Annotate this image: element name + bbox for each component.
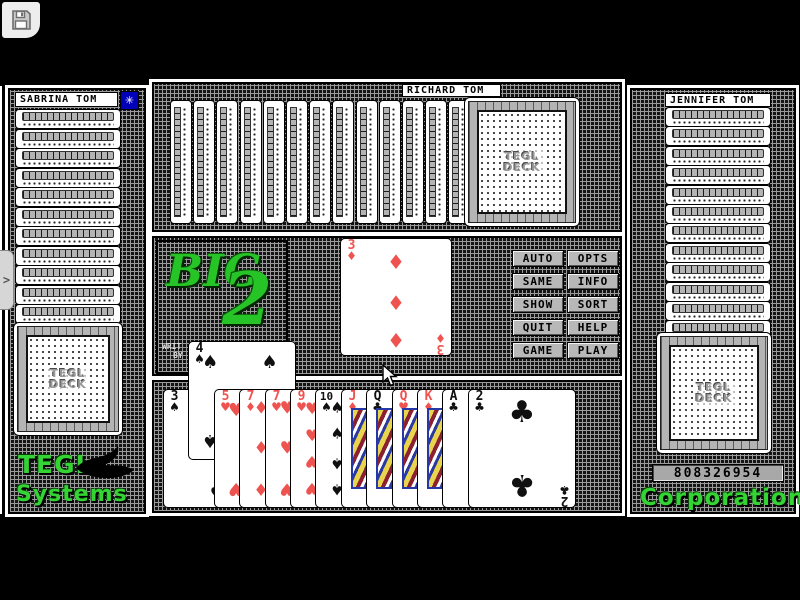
opponent-card-back (15, 168, 121, 188)
card-back-ticks (267, 107, 274, 217)
deck-brand-label: TEGLDECK (47, 367, 88, 391)
opponent-card-back (665, 107, 771, 127)
player-name-north: RICHARD TOM (402, 84, 501, 97)
card-back-ticks (22, 112, 114, 121)
opponent-card-back (216, 100, 238, 224)
opponent-card-back (15, 148, 121, 168)
card-back-dots (414, 107, 419, 217)
card-back-dots (672, 256, 764, 261)
opponent-card-back (332, 100, 354, 224)
card-pip-spade: ♠ (261, 354, 277, 372)
opponent-card-back (665, 243, 771, 263)
opponent-card-back (665, 262, 771, 282)
playing-card-3-diamond: 3♦3♦♦♦♦ (340, 238, 452, 356)
card-back-ticks (22, 307, 114, 316)
slide-out-tab[interactable]: > (0, 250, 14, 310)
opponent-card-back (170, 100, 192, 224)
opponent-card-back (665, 126, 771, 146)
button-auto[interactable]: AUTO (512, 250, 564, 267)
card-back-ticks (22, 288, 114, 297)
card-index: 2♣ (557, 484, 572, 505)
card-back-dotted-field: TEGLDECK (669, 345, 759, 441)
bird-logo-icon (74, 442, 136, 484)
card-back-dots (672, 178, 764, 183)
card-back-dots (391, 107, 396, 217)
card-back-dots (22, 181, 114, 186)
card-back-ticks (336, 107, 343, 217)
player-name-west: SABRINA TOM (15, 92, 118, 107)
button-help[interactable]: HELP (567, 319, 619, 336)
card-back-dots (22, 298, 114, 303)
card-back-ticks (313, 107, 320, 217)
floppy-disk-icon (10, 9, 32, 31)
card-index: 3♠ (167, 392, 182, 413)
opponent-card-back (665, 165, 771, 185)
card-back-ticks (672, 304, 764, 313)
opponent-card-back (665, 146, 771, 166)
card-back-dots (672, 295, 764, 300)
panel-player-east: JENNIFER TOM TEGLDECK 808326954 Corporat… (630, 88, 796, 514)
opponent-card-back (665, 282, 771, 302)
card-back-dots (672, 159, 764, 164)
card-back-ticks (244, 107, 251, 217)
button-info[interactable]: INFO (567, 273, 619, 290)
card-back-full: TEGLDECK (464, 97, 580, 227)
card-back-ticks (672, 265, 764, 274)
card-back-ticks (290, 107, 297, 217)
card-back-ticks (672, 110, 764, 119)
card-back-ticks (672, 149, 764, 158)
button-game[interactable]: GAME (512, 342, 564, 359)
opponent-card-back (356, 100, 378, 224)
card-back-ticks (174, 107, 181, 217)
panel-player-north: RICHARD TOM TEGLDECK (152, 82, 622, 232)
card-back-dots (298, 107, 303, 217)
opponent-card-back (665, 301, 771, 321)
card-back-dots (368, 107, 373, 217)
card-back-ticks (22, 171, 114, 180)
card-back-dots (672, 275, 764, 280)
opponent-card-back (15, 246, 121, 266)
opponent-card-back (425, 100, 447, 224)
card-back-dots (672, 139, 764, 144)
card-index: 3♦ (344, 241, 359, 262)
card-back-ticks (672, 207, 764, 216)
opponent-card-back (193, 100, 215, 224)
card-pip-diamond: ♦ (387, 252, 405, 272)
card-back-ticks (672, 226, 764, 235)
card-back-dots (228, 107, 233, 217)
opponent-card-back (15, 207, 121, 227)
star-icon: ✳ (125, 94, 134, 107)
deck-brand-label: TEGLDECK (693, 381, 734, 405)
opponent-card-back (15, 129, 121, 149)
game-screen: > SABRINA TOM ✳ TEGLDECK TEGL Systems RI… (0, 0, 800, 600)
mouse-cursor (382, 364, 398, 388)
opponent-card-back (15, 304, 121, 324)
vendor-logo-corporation: Corporation (640, 485, 800, 511)
card-back-dots (672, 217, 764, 222)
card-back-ticks (672, 285, 764, 294)
card-back-ticks (672, 129, 764, 138)
card-pip-diamond: ♦ (387, 293, 405, 313)
card-back-dots (182, 107, 187, 217)
opponent-card-back (263, 100, 285, 224)
card-back-dots (275, 107, 280, 217)
card-back-frame: TEGLDECK (660, 336, 768, 450)
card-back-dots (344, 107, 349, 217)
card-back-dots (252, 107, 257, 217)
card-back-dots (437, 107, 442, 217)
opponent-card-back (15, 226, 121, 246)
deck-brand-label: TEGLDECK (501, 150, 542, 174)
card-back-dots (321, 107, 326, 217)
card-back-ticks (22, 151, 114, 160)
card-back-dots (672, 236, 764, 241)
panel-player-west: SABRINA TOM ✳ TEGLDECK TEGL Systems (8, 88, 146, 514)
save-button[interactable] (2, 2, 40, 38)
card-back-dots (22, 220, 114, 225)
opponent-card-back (15, 285, 121, 305)
opponent-card-back (379, 100, 401, 224)
card-index: A♣ (446, 392, 461, 413)
card-back-ticks (360, 107, 367, 217)
card-pip-club: ♣ (509, 398, 536, 428)
card-back-ticks (220, 107, 227, 217)
card-back-full: TEGLDECK (13, 322, 123, 436)
card-back-frame: TEGLDECK (468, 101, 576, 223)
card-pip-spade: ♠ (202, 354, 218, 372)
credit-text: WRIT BY (162, 342, 183, 360)
card-back-full: TEGLDECK (656, 332, 772, 454)
turn-indicator-badge: ✳ (120, 91, 139, 110)
opponent-card-back (15, 109, 121, 129)
card-back-ticks (22, 132, 114, 141)
card-back-dotted-field: TEGLDECK (26, 335, 110, 423)
opponent-card-back (665, 223, 771, 243)
card-back-dots (22, 122, 114, 127)
card-back-dots (22, 259, 114, 264)
card-back-dots (672, 120, 764, 125)
opponent-card-back (286, 100, 308, 224)
opponent-card-back (665, 185, 771, 205)
card-back-dots (22, 278, 114, 283)
action-button-grid: AUTOOPTSSAMEINFOSHOWSORTQUITHELPGAMEPLAY (512, 250, 619, 359)
card-back-dots (22, 142, 114, 147)
opponent-card-back (402, 100, 424, 224)
playing-card-2-club[interactable]: 2♣2♣♣♣ (468, 389, 576, 508)
card-back-dots (205, 107, 210, 217)
card-back-ticks (22, 268, 114, 277)
card-back-dots (22, 239, 114, 244)
vendor-logo-systems: Systems (16, 482, 128, 507)
card-back-ticks (197, 107, 204, 217)
card-back-ticks (22, 249, 114, 258)
card-index: 3♦ (433, 332, 448, 353)
button-show[interactable]: SHOW (512, 296, 564, 313)
card-back-ticks (672, 246, 764, 255)
card-back-ticks (22, 229, 114, 238)
card-back-dots (22, 161, 114, 166)
card-back-dots (672, 198, 764, 203)
button-sort[interactable]: SORT (567, 296, 619, 313)
card-back-ticks (672, 168, 764, 177)
player-name-east: JENNIFER TOM (665, 93, 771, 107)
button-opts[interactable]: OPTS (567, 250, 619, 267)
card-back-ticks (22, 190, 114, 199)
opponent-card-back (15, 265, 121, 285)
card-back-dots (22, 200, 114, 205)
card-pip-diamond: ♦ (387, 330, 405, 350)
button-quit[interactable]: QUIT (512, 319, 564, 336)
card-back-ticks (406, 107, 413, 217)
opponent-card-back (15, 187, 121, 207)
chevron-right-icon: > (3, 273, 10, 287)
logo-two: 2 (222, 256, 272, 341)
card-back-frame: TEGLDECK (17, 326, 119, 432)
card-back-dots (672, 314, 764, 319)
button-same[interactable]: SAME (512, 273, 564, 290)
card-back-ticks (452, 107, 459, 217)
button-play[interactable]: PLAY (567, 342, 619, 359)
card-back-dotted-field: TEGLDECK (477, 110, 567, 214)
card-pip-club: ♣ (509, 469, 536, 499)
card-back-ticks (429, 107, 436, 217)
card-index: 2♣ (472, 392, 487, 413)
opponent-card-back (665, 204, 771, 224)
score-display: 808326954 (652, 464, 784, 482)
card-back-ticks (383, 107, 390, 217)
card-back-ticks (22, 210, 114, 219)
opponent-card-back (309, 100, 331, 224)
card-back-ticks (672, 188, 764, 197)
opponent-card-back (240, 100, 262, 224)
